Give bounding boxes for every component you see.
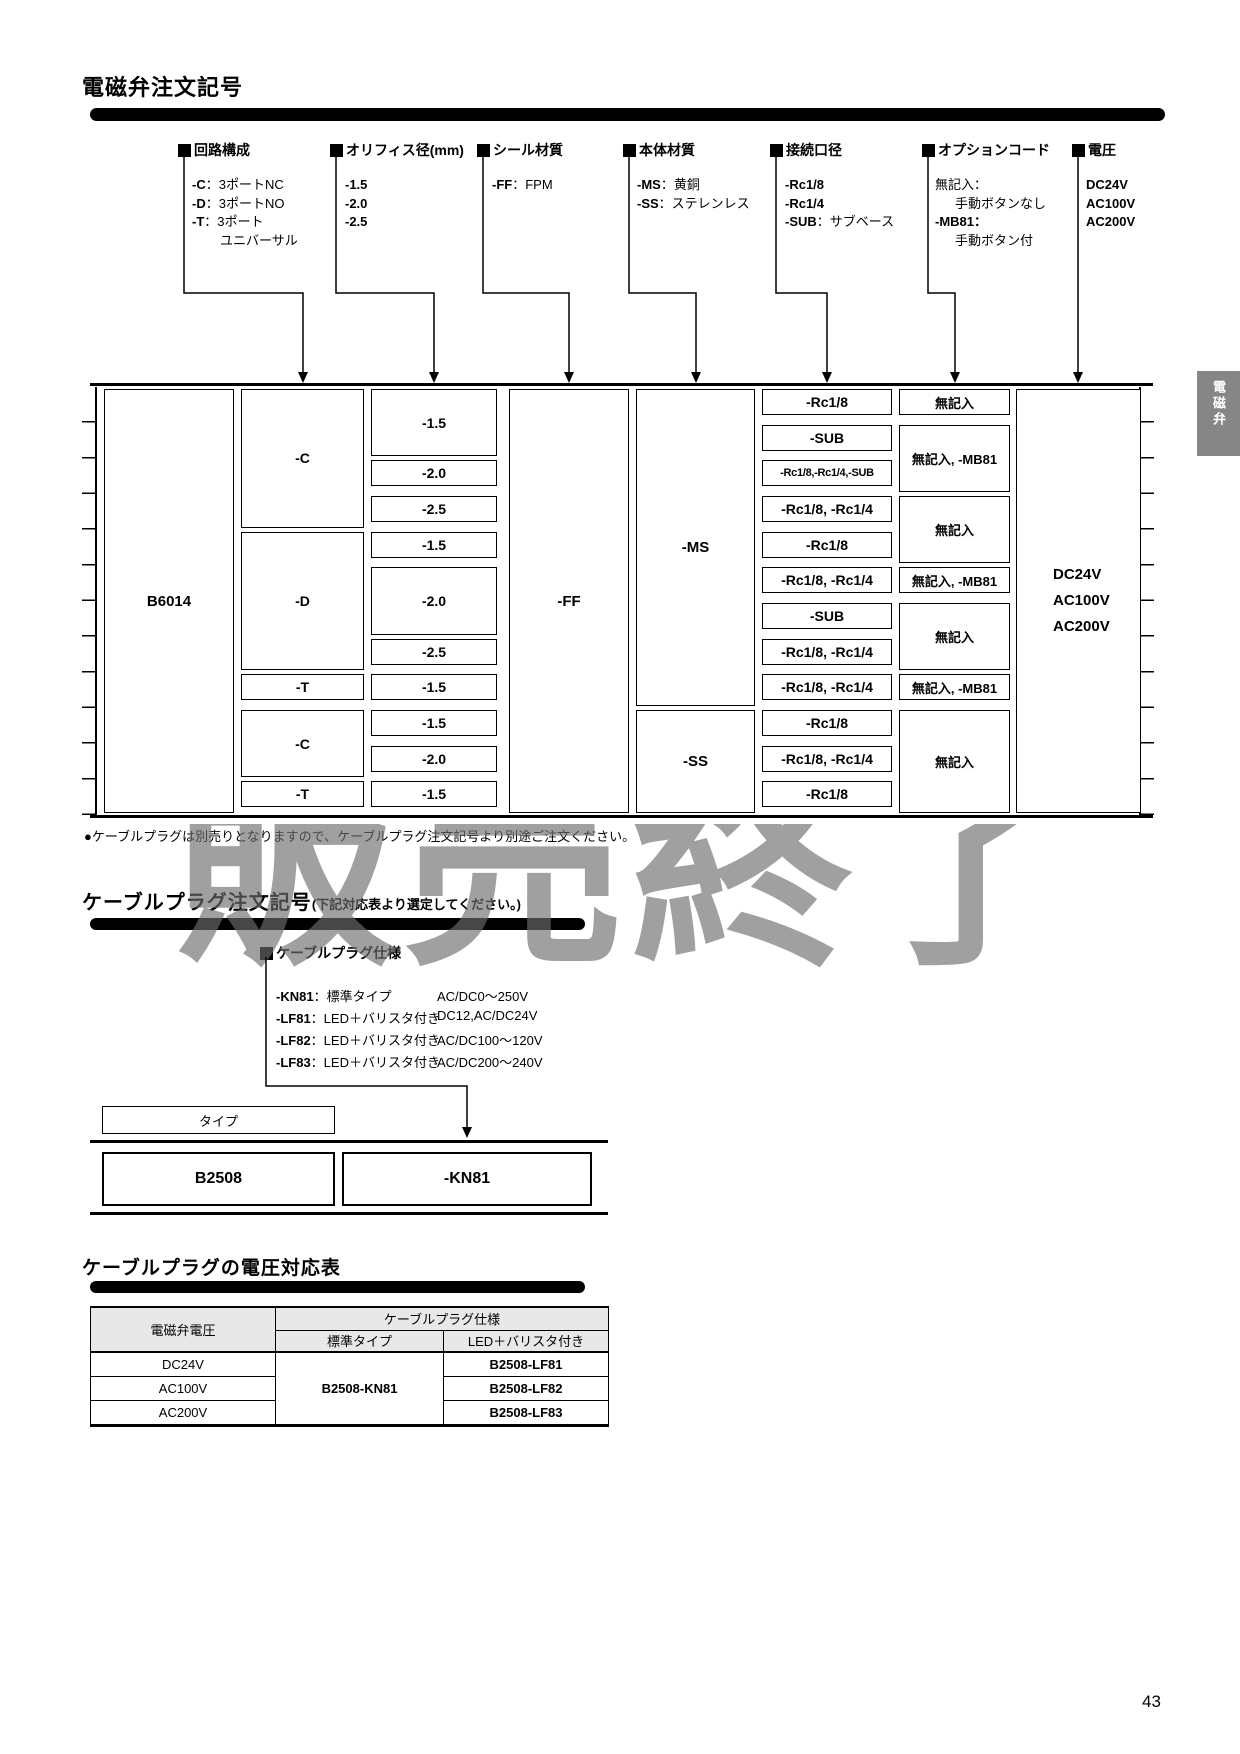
row-voltage: AC200V bbox=[91, 1400, 276, 1425]
cell-circuit: -C bbox=[241, 710, 364, 777]
cell-port: -SUB bbox=[762, 603, 892, 629]
voltage-map-table: 電磁弁電圧 ケーブルプラグ仕様 標準タイプ LED＋バリスタ付き DC24V B… bbox=[90, 1306, 609, 1427]
table-bottom-rule bbox=[90, 815, 1153, 818]
section2-title-bar bbox=[90, 918, 585, 930]
cell-circuit: -C bbox=[241, 389, 364, 528]
cell-port: -Rc1/8, -Rc1/4 bbox=[762, 639, 892, 665]
cell-option: 無記入 bbox=[899, 603, 1010, 670]
cell-port: -Rc1/8 bbox=[762, 389, 892, 415]
section3-title: ケーブルプラグの電圧対応表 bbox=[82, 1253, 341, 1280]
header-port: 接続口径 bbox=[770, 140, 842, 160]
cell-body-material: -SS bbox=[636, 710, 755, 813]
options-body: -MS：黄銅 -SS：ステレンレス bbox=[637, 176, 750, 213]
options-seal: -FF：FPM bbox=[492, 176, 553, 195]
header-circuit: 回路構成 bbox=[178, 140, 250, 160]
cell-port: -Rc1/8 bbox=[762, 781, 892, 807]
cell-orifice: -1.5 bbox=[371, 389, 497, 456]
cell-circuit: -T bbox=[241, 781, 364, 807]
row-voltage: DC24V bbox=[91, 1352, 276, 1376]
cell-option: 無記入 bbox=[899, 389, 1010, 415]
cell-circuit: -D bbox=[241, 532, 364, 671]
col-header-standard: 標準タイプ bbox=[276, 1330, 444, 1352]
cell-orifice: -2.5 bbox=[371, 639, 497, 665]
cell-port: -Rc1/8, -Rc1/4 bbox=[762, 674, 892, 700]
header-body: 本体材質 bbox=[623, 140, 695, 160]
cell-port: -Rc1/8, -Rc1/4 bbox=[762, 567, 892, 593]
header-seal: シール材質 bbox=[477, 140, 563, 160]
catalog-page: 電磁弁注文記号 回路構成 オリフィス径(mm) シール材質 本体材質 接続口径 … bbox=[0, 0, 1240, 1754]
cell-orifice: -2.0 bbox=[371, 567, 497, 634]
spec-row: -LF81：LED＋バリスタ付きDC12,AC/DC24V bbox=[276, 1008, 440, 1027]
cell-port: -Rc1/8, -Rc1/4 bbox=[762, 496, 892, 522]
cell-plug-code: -KN81 bbox=[342, 1152, 592, 1206]
black-square-icon bbox=[330, 144, 343, 157]
options-port: -Rc1/8 -Rc1/4 -SUB：サブベース bbox=[785, 176, 894, 232]
header-option: オプションコード bbox=[922, 140, 1050, 160]
cell-port: -Rc1/8, -Rc1/4 bbox=[762, 746, 892, 772]
cell-option: 無記入 bbox=[899, 710, 1010, 813]
cell-port: -Rc1/8,-Rc1/4,-SUB bbox=[762, 460, 892, 486]
cell-option: 無記入, -MB81 bbox=[899, 567, 1010, 593]
cell-plug-type-code: B2508 bbox=[102, 1152, 335, 1206]
black-square-icon bbox=[260, 947, 273, 960]
cable-plug-note: ●ケーブルプラグは別売りとなりますので、ケーブルプラグ注文記号より別途ご注文くだ… bbox=[84, 826, 635, 845]
header-voltage: 電圧 bbox=[1072, 140, 1116, 160]
cell-option: 無記入, -MB81 bbox=[899, 674, 1010, 700]
section2-title: ケーブルプラグ注文記号(下記対応表より選定してください。) bbox=[82, 886, 521, 915]
black-square-icon bbox=[770, 144, 783, 157]
black-square-icon bbox=[623, 144, 636, 157]
connector-lines bbox=[0, 0, 1240, 1754]
row-ticks-right bbox=[1141, 387, 1154, 815]
row-ticks-left bbox=[82, 387, 95, 815]
cell-port: -Rc1/8 bbox=[762, 532, 892, 558]
cell-option: 無記入 bbox=[899, 496, 1010, 563]
black-square-icon bbox=[922, 144, 935, 157]
table-top-rule bbox=[90, 383, 1153, 386]
section1-title-bar bbox=[90, 108, 1165, 121]
side-tab-solenoid-valve: 電磁弁 bbox=[1197, 371, 1240, 456]
cell-seal: -FF bbox=[509, 389, 629, 813]
cell-port: -Rc1/8 bbox=[762, 710, 892, 736]
black-square-icon bbox=[178, 144, 191, 157]
cell-led-plug: B2508-LF81 bbox=[444, 1352, 609, 1376]
cell-voltage: DC24V AC100V AC200V bbox=[1016, 389, 1141, 813]
frame-left bbox=[95, 387, 97, 815]
cell-orifice: -1.5 bbox=[371, 674, 497, 700]
row-voltage: AC100V bbox=[91, 1376, 276, 1400]
spec-row: -KN81：標準タイプAC/DC0～250V bbox=[276, 986, 392, 1005]
cell-body-material: -MS bbox=[636, 389, 755, 706]
cell-orifice: -1.5 bbox=[371, 781, 497, 807]
plug-table-top-rule bbox=[90, 1140, 608, 1143]
options-circuit: -C：3ポートNC -D：3ポートNO -T：3ポート ユニバーサル bbox=[192, 176, 298, 250]
plug-table-bottom-rule bbox=[90, 1212, 608, 1215]
options-voltage: DC24VAC100VAC200V bbox=[1086, 176, 1135, 232]
col-header-valve-voltage: 電磁弁電圧 bbox=[91, 1307, 276, 1352]
section3-title-bar bbox=[90, 1281, 585, 1293]
cell-orifice: -2.0 bbox=[371, 746, 497, 772]
cell-led-plug: B2508-LF82 bbox=[444, 1376, 609, 1400]
spec-row: -LF82：LED＋バリスタ付きAC/DC100～120V bbox=[276, 1030, 440, 1049]
cell-led-plug: B2508-LF83 bbox=[444, 1400, 609, 1425]
valve-order-table: B6014 -C -D -T -C -T -1.5 -2.0 -2.5 -1.5… bbox=[82, 346, 1155, 824]
header-cable-plug-spec: ケーブルプラグ仕様 bbox=[260, 943, 401, 963]
black-square-icon bbox=[1072, 144, 1085, 157]
options-option-code: 無記入： 手動ボタンなし -MB81： 手動ボタン付 bbox=[935, 176, 1046, 250]
cell-orifice: -1.5 bbox=[371, 710, 497, 736]
page-number: 43 bbox=[1142, 1692, 1161, 1712]
black-square-icon bbox=[477, 144, 490, 157]
header-orifice: オリフィス径(mm) bbox=[330, 140, 464, 160]
cell-circuit: -T bbox=[241, 674, 364, 700]
cell-standard-plug: B2508-KN81 bbox=[276, 1352, 444, 1425]
col-header-plug-spec: ケーブルプラグ仕様 bbox=[276, 1307, 609, 1330]
spec-row: -LF83：LED＋バリスタ付きAC/DC200～240V bbox=[276, 1052, 440, 1071]
options-orifice: -1.5-2.0-2.5 bbox=[345, 176, 367, 232]
cell-orifice: -2.0 bbox=[371, 460, 497, 486]
cell-port: -SUB bbox=[762, 425, 892, 451]
col-header-led: LED＋バリスタ付き bbox=[444, 1330, 609, 1352]
type-label-box-plug: タイプ bbox=[102, 1106, 335, 1134]
cell-orifice: -2.5 bbox=[371, 496, 497, 522]
cell-orifice: -1.5 bbox=[371, 532, 497, 558]
section1-title: 電磁弁注文記号 bbox=[82, 70, 243, 102]
cell-option: 無記入, -MB81 bbox=[899, 425, 1010, 492]
cell-type-code: B6014 bbox=[104, 389, 234, 813]
